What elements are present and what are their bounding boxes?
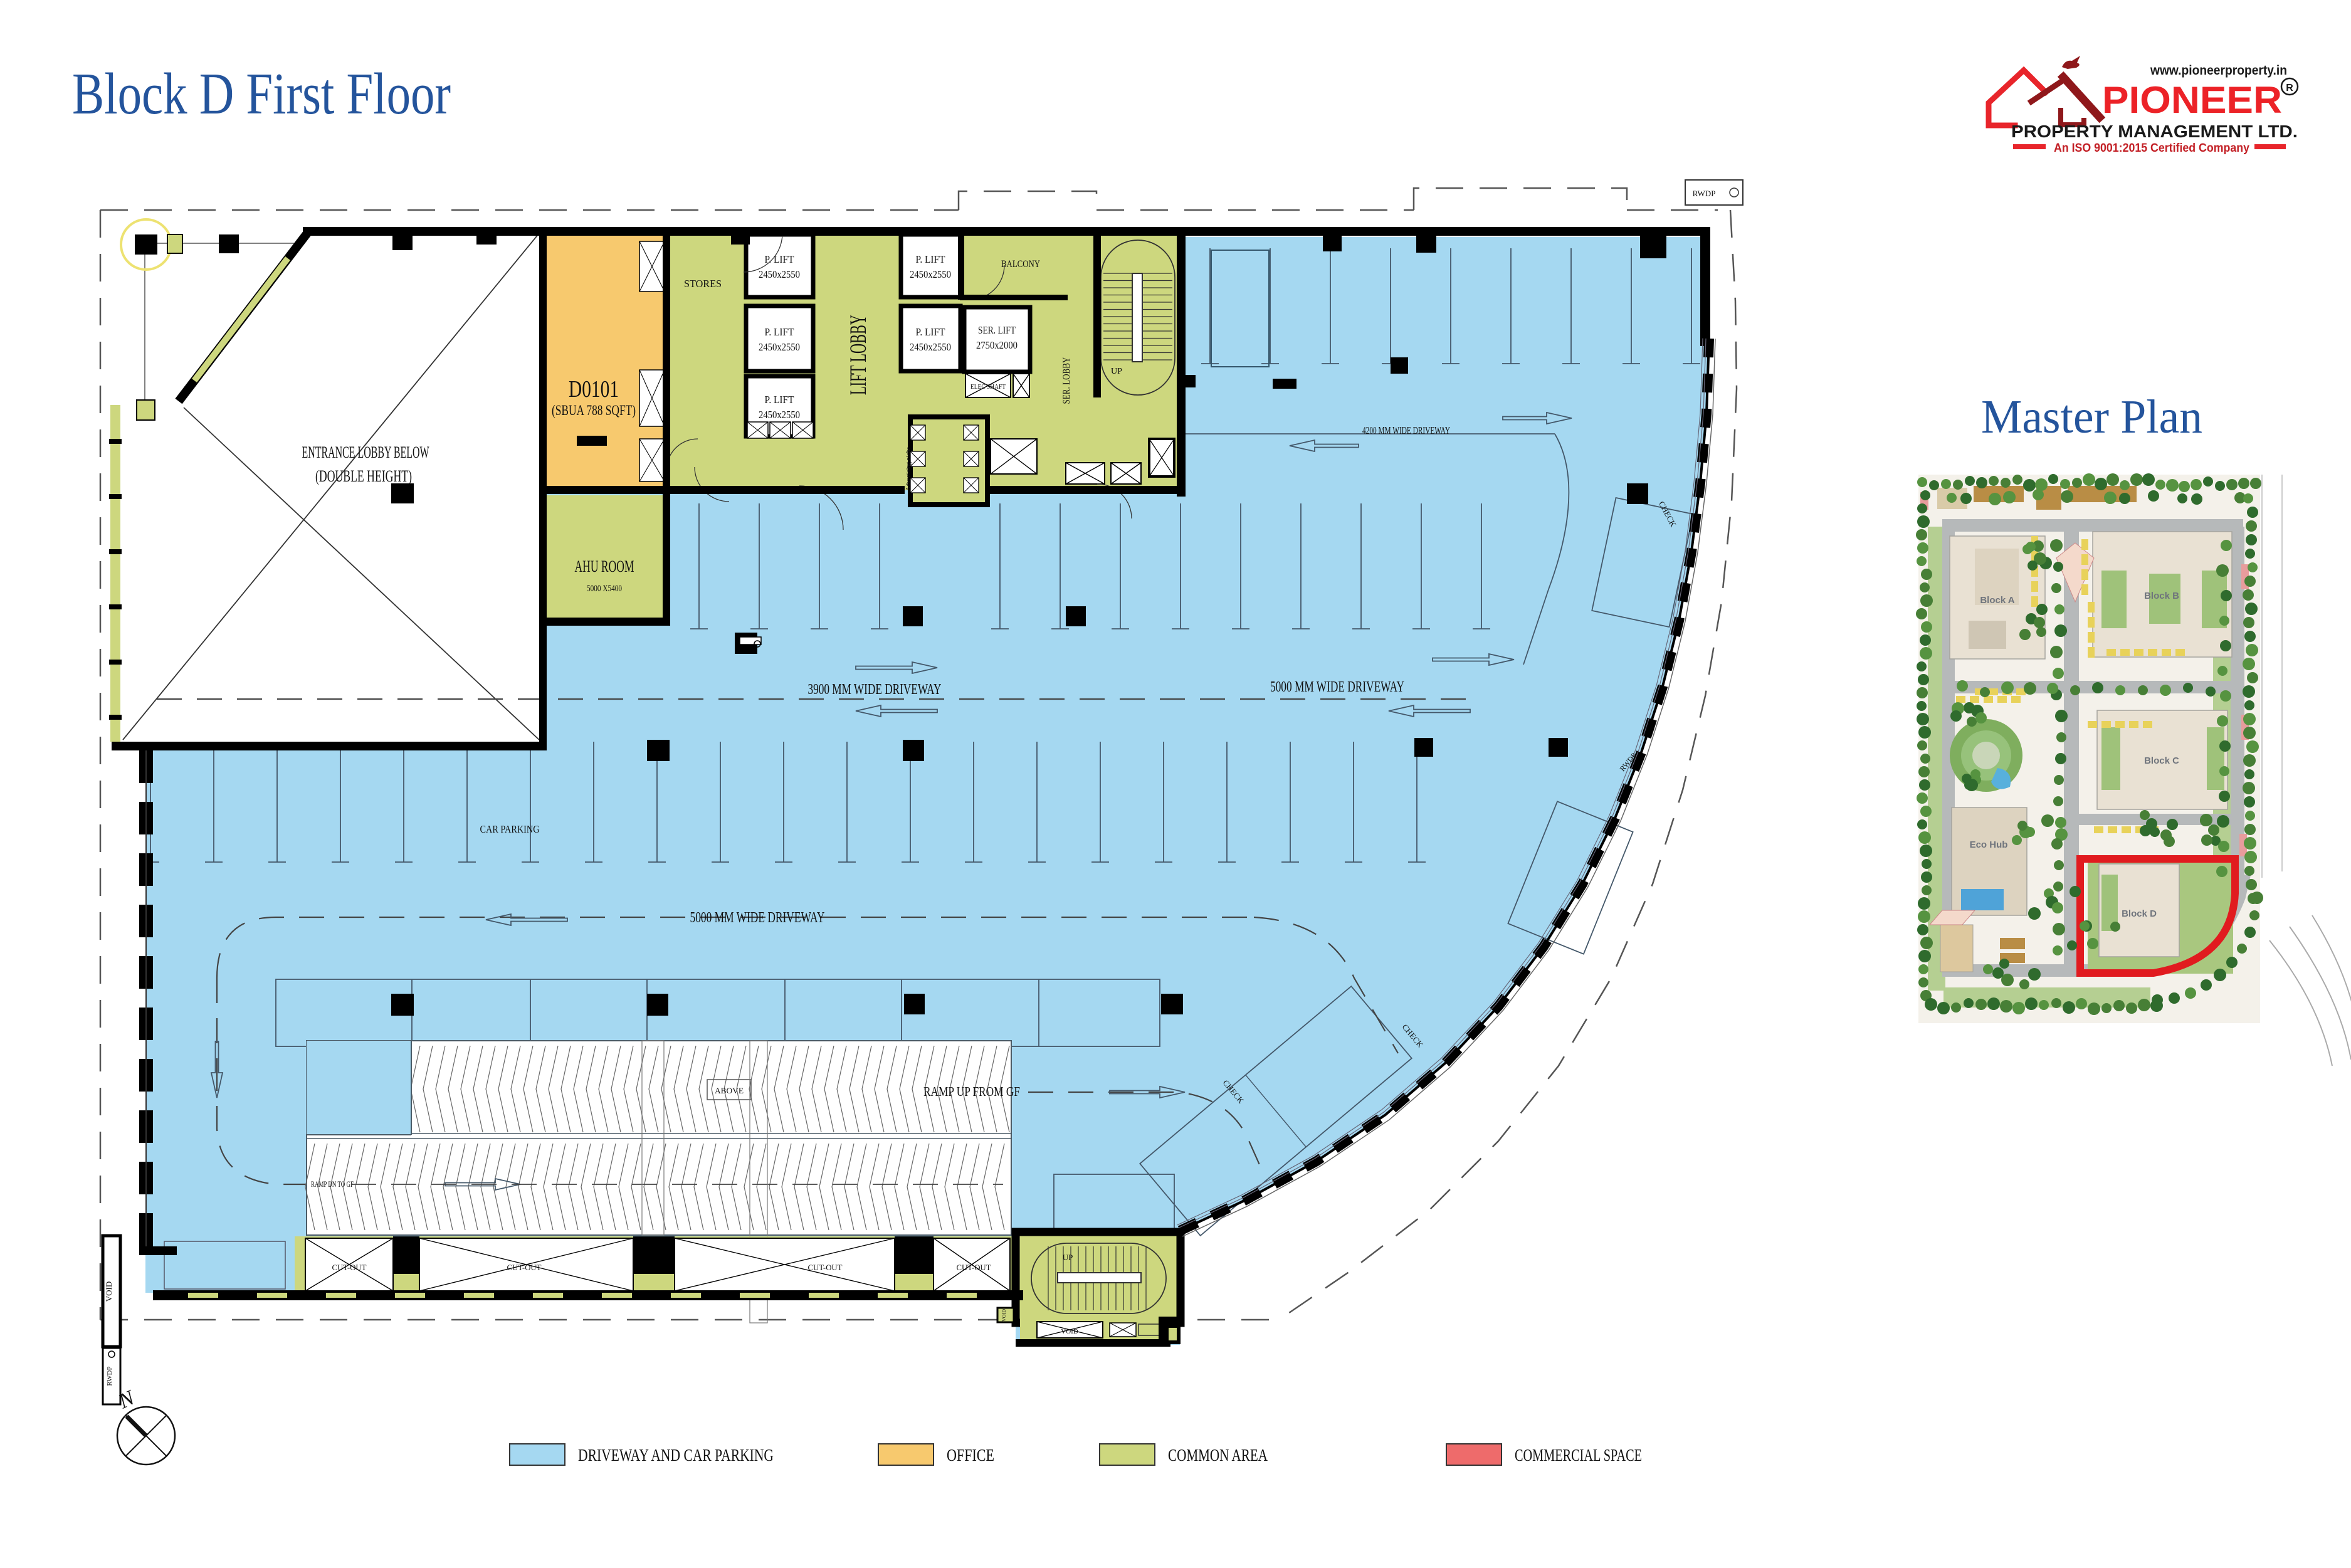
svg-text:P. LIFT: P. LIFT: [916, 253, 946, 265]
svg-text:RWDP: RWDP: [106, 1366, 113, 1386]
svg-text:CUT-OUT: CUT-OUT: [507, 1263, 542, 1272]
svg-text:VOID: VOID: [1061, 1328, 1078, 1335]
svg-text:DRIVEWAY AND CAR PARKING: DRIVEWAY AND CAR PARKING: [578, 1446, 774, 1465]
svg-text:OFFICE: OFFICE: [947, 1446, 994, 1465]
svg-text:D0101: D0101: [569, 376, 619, 403]
svg-text:Advertising niche: Advertising niche: [905, 446, 912, 491]
svg-text:2450x2550: 2450x2550: [759, 341, 800, 353]
svg-text:P. LIFT: P. LIFT: [765, 326, 795, 338]
svg-text:2450x2550: 2450x2550: [910, 341, 951, 353]
svg-text:3900 MM WIDE DRIVEWAY: 3900 MM WIDE DRIVEWAY: [808, 681, 942, 698]
svg-text:(DOUBLE HEIGHT): (DOUBLE HEIGHT): [315, 467, 412, 485]
svg-text:UP: UP: [1111, 367, 1122, 376]
svg-text:COMMERCIAL SPACE: COMMERCIAL SPACE: [1515, 1446, 1642, 1465]
svg-text:AHU ROOM: AHU ROOM: [575, 557, 634, 576]
svg-text:Block A: Block A: [1980, 595, 2014, 606]
svg-text:SER. LOBBY: SER. LOBBY: [1061, 357, 1072, 404]
svg-text:2450x2550: 2450x2550: [910, 268, 951, 280]
svg-text:RWDP: RWDP: [1693, 189, 1716, 198]
svg-text:5000 MM WIDE DRIVEWAY: 5000 MM WIDE DRIVEWAY: [690, 910, 825, 926]
svg-text:Block C: Block C: [2144, 755, 2179, 766]
svg-text:ENTRANCE LOBBY BELOW: ENTRANCE LOBBY BELOW: [302, 443, 429, 461]
svg-text:P. LIFT: P. LIFT: [765, 253, 795, 265]
svg-text:CUT-OUT: CUT-OUT: [808, 1263, 843, 1272]
svg-text:CUT-OUT: CUT-OUT: [957, 1263, 991, 1272]
svg-text:Block B: Block B: [2144, 591, 2179, 601]
svg-text:ABOVE: ABOVE: [715, 1086, 744, 1095]
svg-text:(SBUA 788 SQFT): (SBUA 788 SQFT): [552, 403, 636, 418]
svg-text:P. LIFT: P. LIFT: [765, 394, 795, 406]
svg-text:5000 X5400: 5000 X5400: [587, 584, 622, 594]
svg-text:VOID: VOID: [1001, 1309, 1007, 1322]
svg-text:4200 MM WIDE DRIVEWAY: 4200 MM WIDE DRIVEWAY: [1362, 424, 1450, 436]
svg-text:www.pioneerproperty.in: www.pioneerproperty.in: [2150, 63, 2287, 78]
svg-text:Block D First Floor: Block D First Floor: [72, 61, 451, 127]
svg-text:PIONEER: PIONEER: [2102, 79, 2282, 121]
svg-text:STORES: STORES: [684, 278, 722, 290]
svg-text:ELEC SHAFT: ELEC SHAFT: [970, 384, 1006, 391]
svg-text:5000 MM WIDE DRIVEWAY: 5000 MM WIDE DRIVEWAY: [1270, 679, 1404, 695]
svg-text:CUT-OUT: CUT-OUT: [332, 1263, 367, 1272]
svg-text:COMMON AREA: COMMON AREA: [1168, 1446, 1268, 1465]
svg-text:LIFT LOBBY: LIFT LOBBY: [846, 315, 871, 395]
svg-text:Block D: Block D: [2122, 908, 2157, 919]
svg-text:R: R: [2286, 83, 2293, 93]
svg-text:CAR PARKING: CAR PARKING: [480, 823, 540, 835]
svg-text:BALCONY: BALCONY: [1001, 259, 1040, 270]
svg-text:RAMP UP FROM GF: RAMP UP FROM GF: [923, 1084, 1020, 1099]
svg-text:RAMP DN TO GF: RAMP DN TO GF: [311, 1179, 354, 1189]
svg-text:PROPERTY MANAGEMENT LTD.: PROPERTY MANAGEMENT LTD.: [2011, 122, 2298, 141]
svg-text:2750x2000: 2750x2000: [976, 339, 1018, 351]
svg-text:Eco Hub: Eco Hub: [1970, 839, 2008, 850]
svg-text:2450x2550: 2450x2550: [759, 268, 800, 280]
svg-text:P. LIFT: P. LIFT: [916, 326, 946, 338]
svg-text:2450x2550: 2450x2550: [759, 409, 800, 421]
svg-text:UP: UP: [1063, 1253, 1073, 1262]
svg-text:Master Plan: Master Plan: [1981, 391, 2202, 443]
svg-text:An ISO 9001:2015 Certified Com: An ISO 9001:2015 Certified Company: [2054, 142, 2249, 155]
svg-text:VOID: VOID: [104, 1281, 113, 1302]
svg-text:SER. LIFT: SER. LIFT: [978, 324, 1016, 336]
